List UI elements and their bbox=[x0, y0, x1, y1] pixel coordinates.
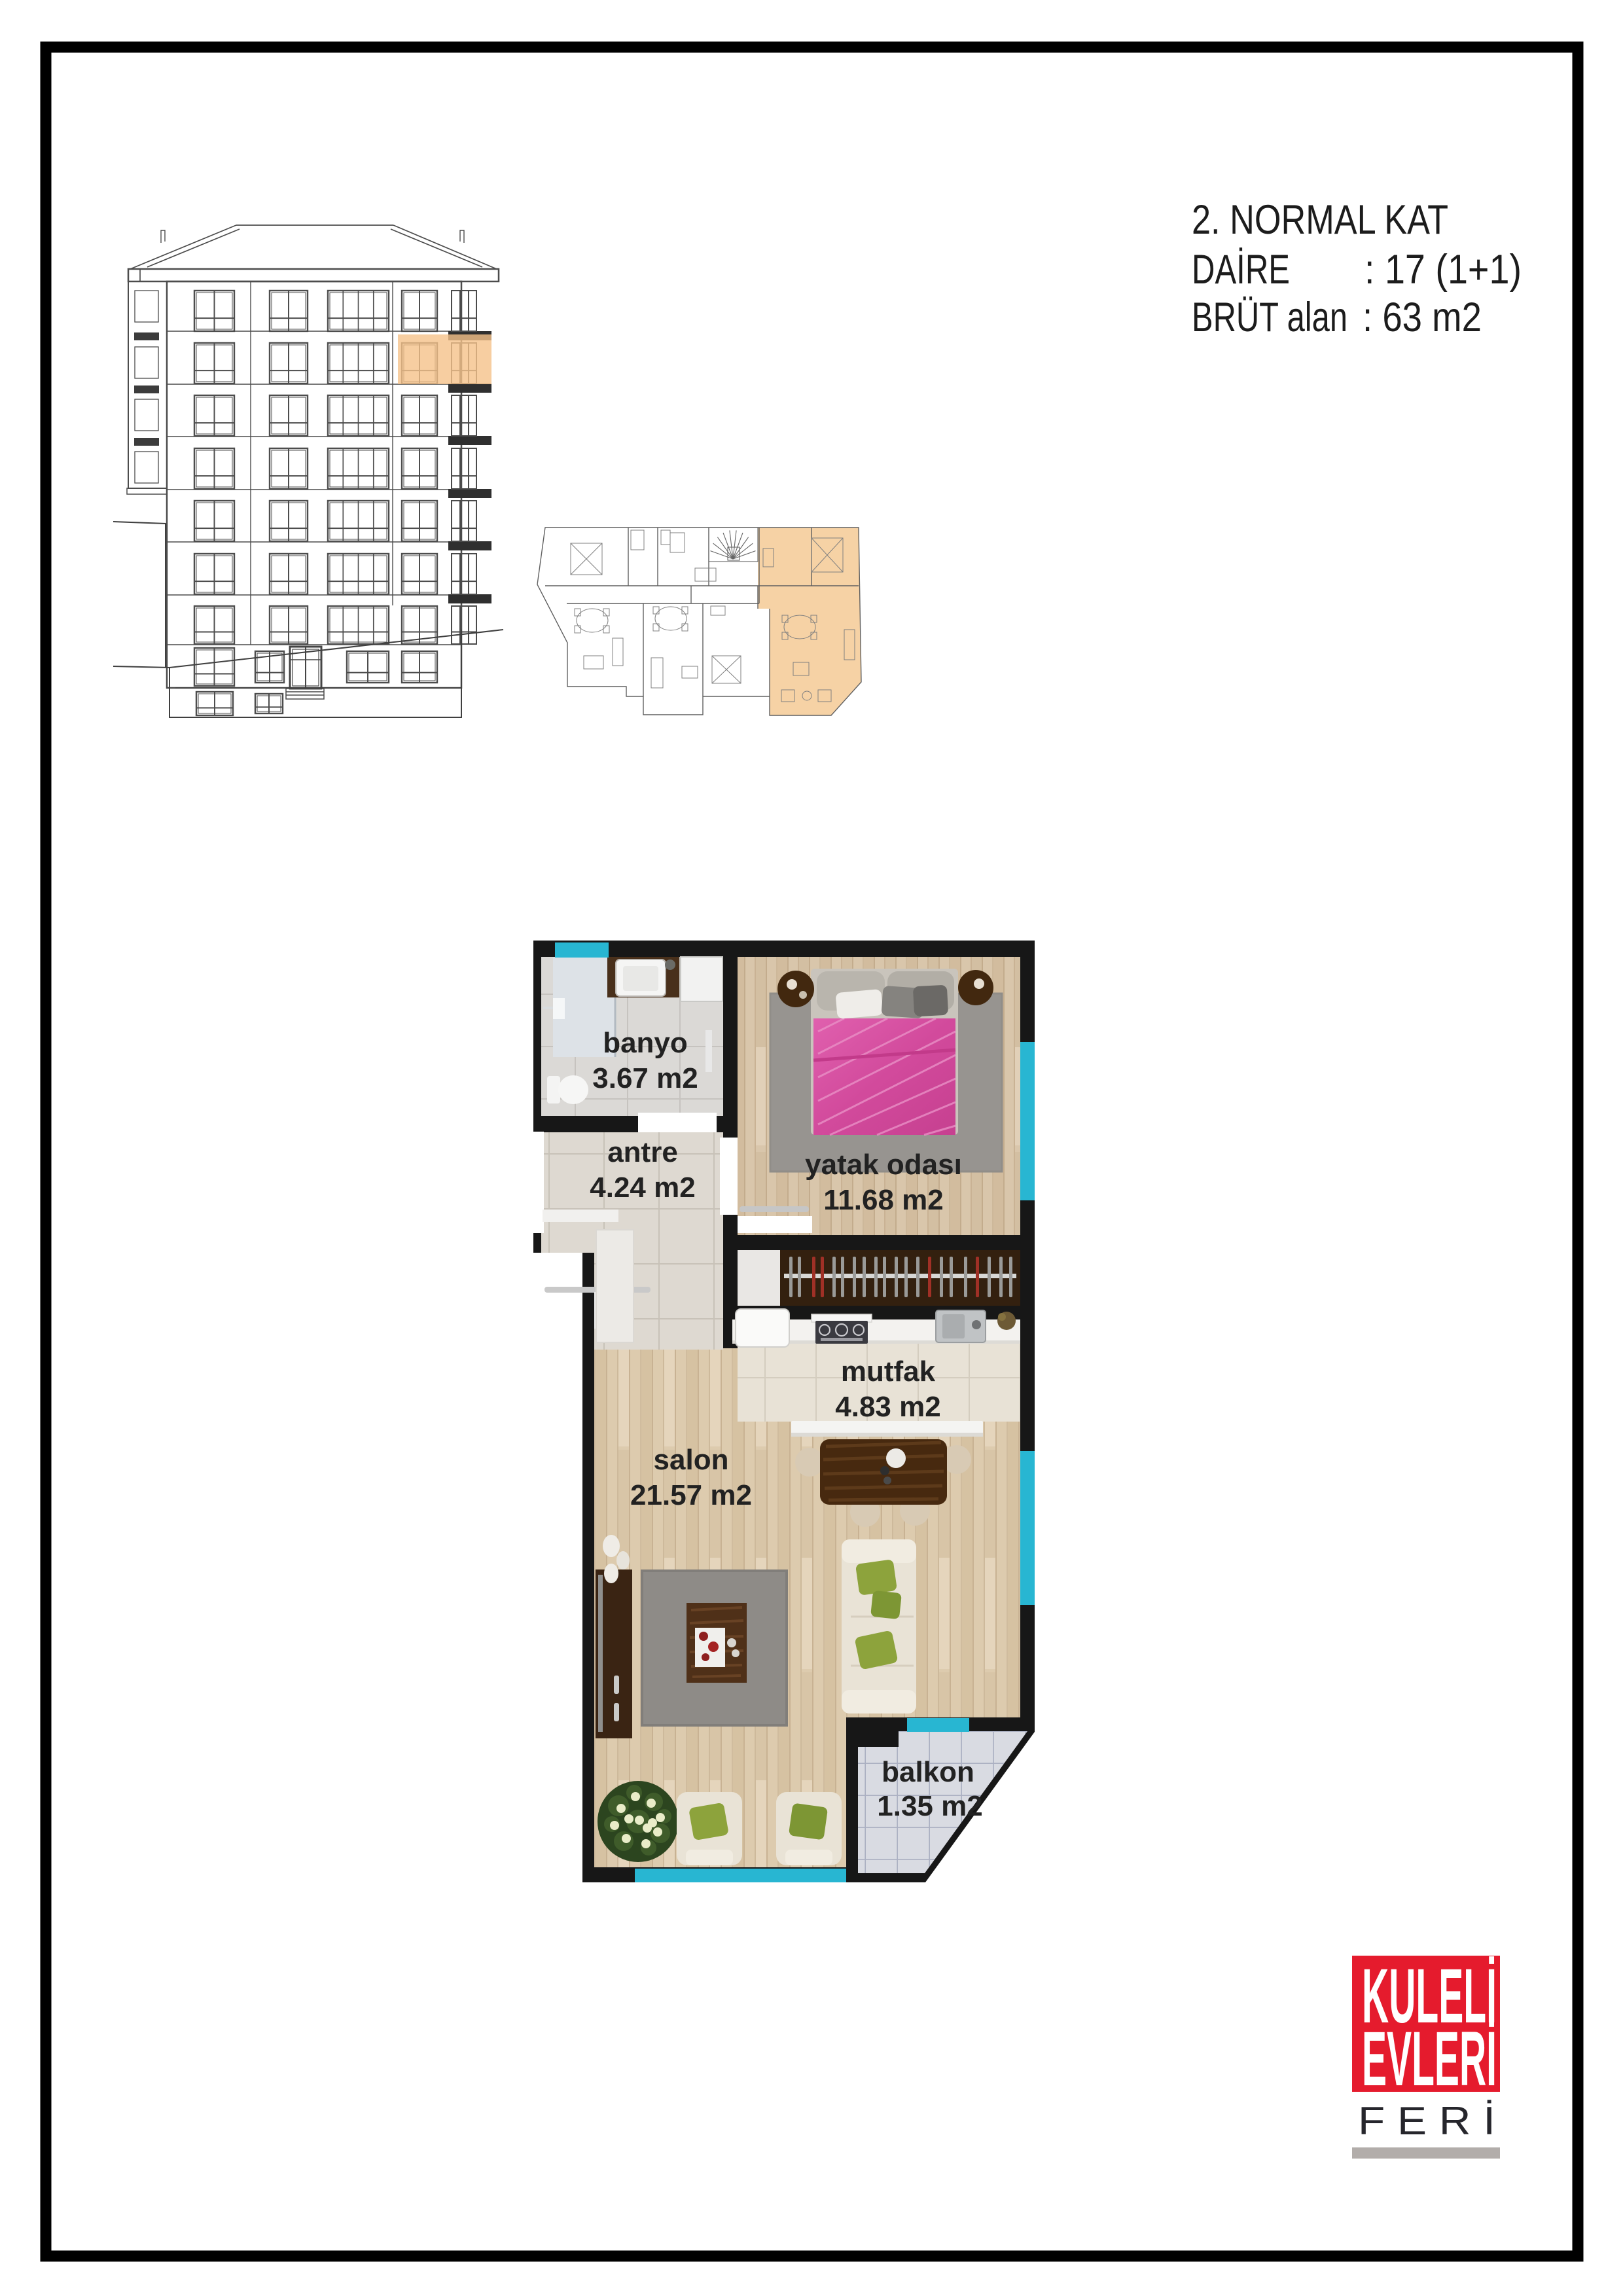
svg-text:EVLERİ: EVLERİ bbox=[1362, 2016, 1497, 2102]
svg-text:4.83 m2: 4.83 m2 bbox=[835, 1391, 940, 1423]
svg-text:4.24 m2: 4.24 m2 bbox=[590, 1172, 695, 1204]
svg-text:balkon: balkon bbox=[882, 1756, 974, 1788]
svg-text:2. NORMAL KAT: 2. NORMAL KAT bbox=[1192, 197, 1448, 243]
svg-text:11.68 m2: 11.68 m2 bbox=[823, 1184, 944, 1216]
svg-text:DAİRE: DAİRE bbox=[1192, 247, 1290, 293]
svg-text:F E R İ: F E R İ bbox=[1358, 2099, 1495, 2143]
svg-text:1.35 m2: 1.35 m2 bbox=[877, 1790, 982, 1822]
svg-text:BRÜT alan: BRÜT alan bbox=[1192, 295, 1347, 340]
svg-text:salon: salon bbox=[654, 1444, 729, 1476]
svg-text:mutfak: mutfak bbox=[841, 1355, 936, 1388]
svg-text:: 63 m2: : 63 m2 bbox=[1363, 295, 1482, 340]
svg-text:banyo: banyo bbox=[603, 1027, 688, 1059]
svg-text:: 17 (1+1): : 17 (1+1) bbox=[1364, 247, 1522, 293]
svg-text:3.67 m2: 3.67 m2 bbox=[592, 1062, 698, 1094]
svg-text:21.57 m2: 21.57 m2 bbox=[630, 1479, 752, 1511]
svg-text:yatak odası: yatak odası bbox=[805, 1149, 962, 1181]
svg-text:antre: antre bbox=[607, 1136, 678, 1168]
